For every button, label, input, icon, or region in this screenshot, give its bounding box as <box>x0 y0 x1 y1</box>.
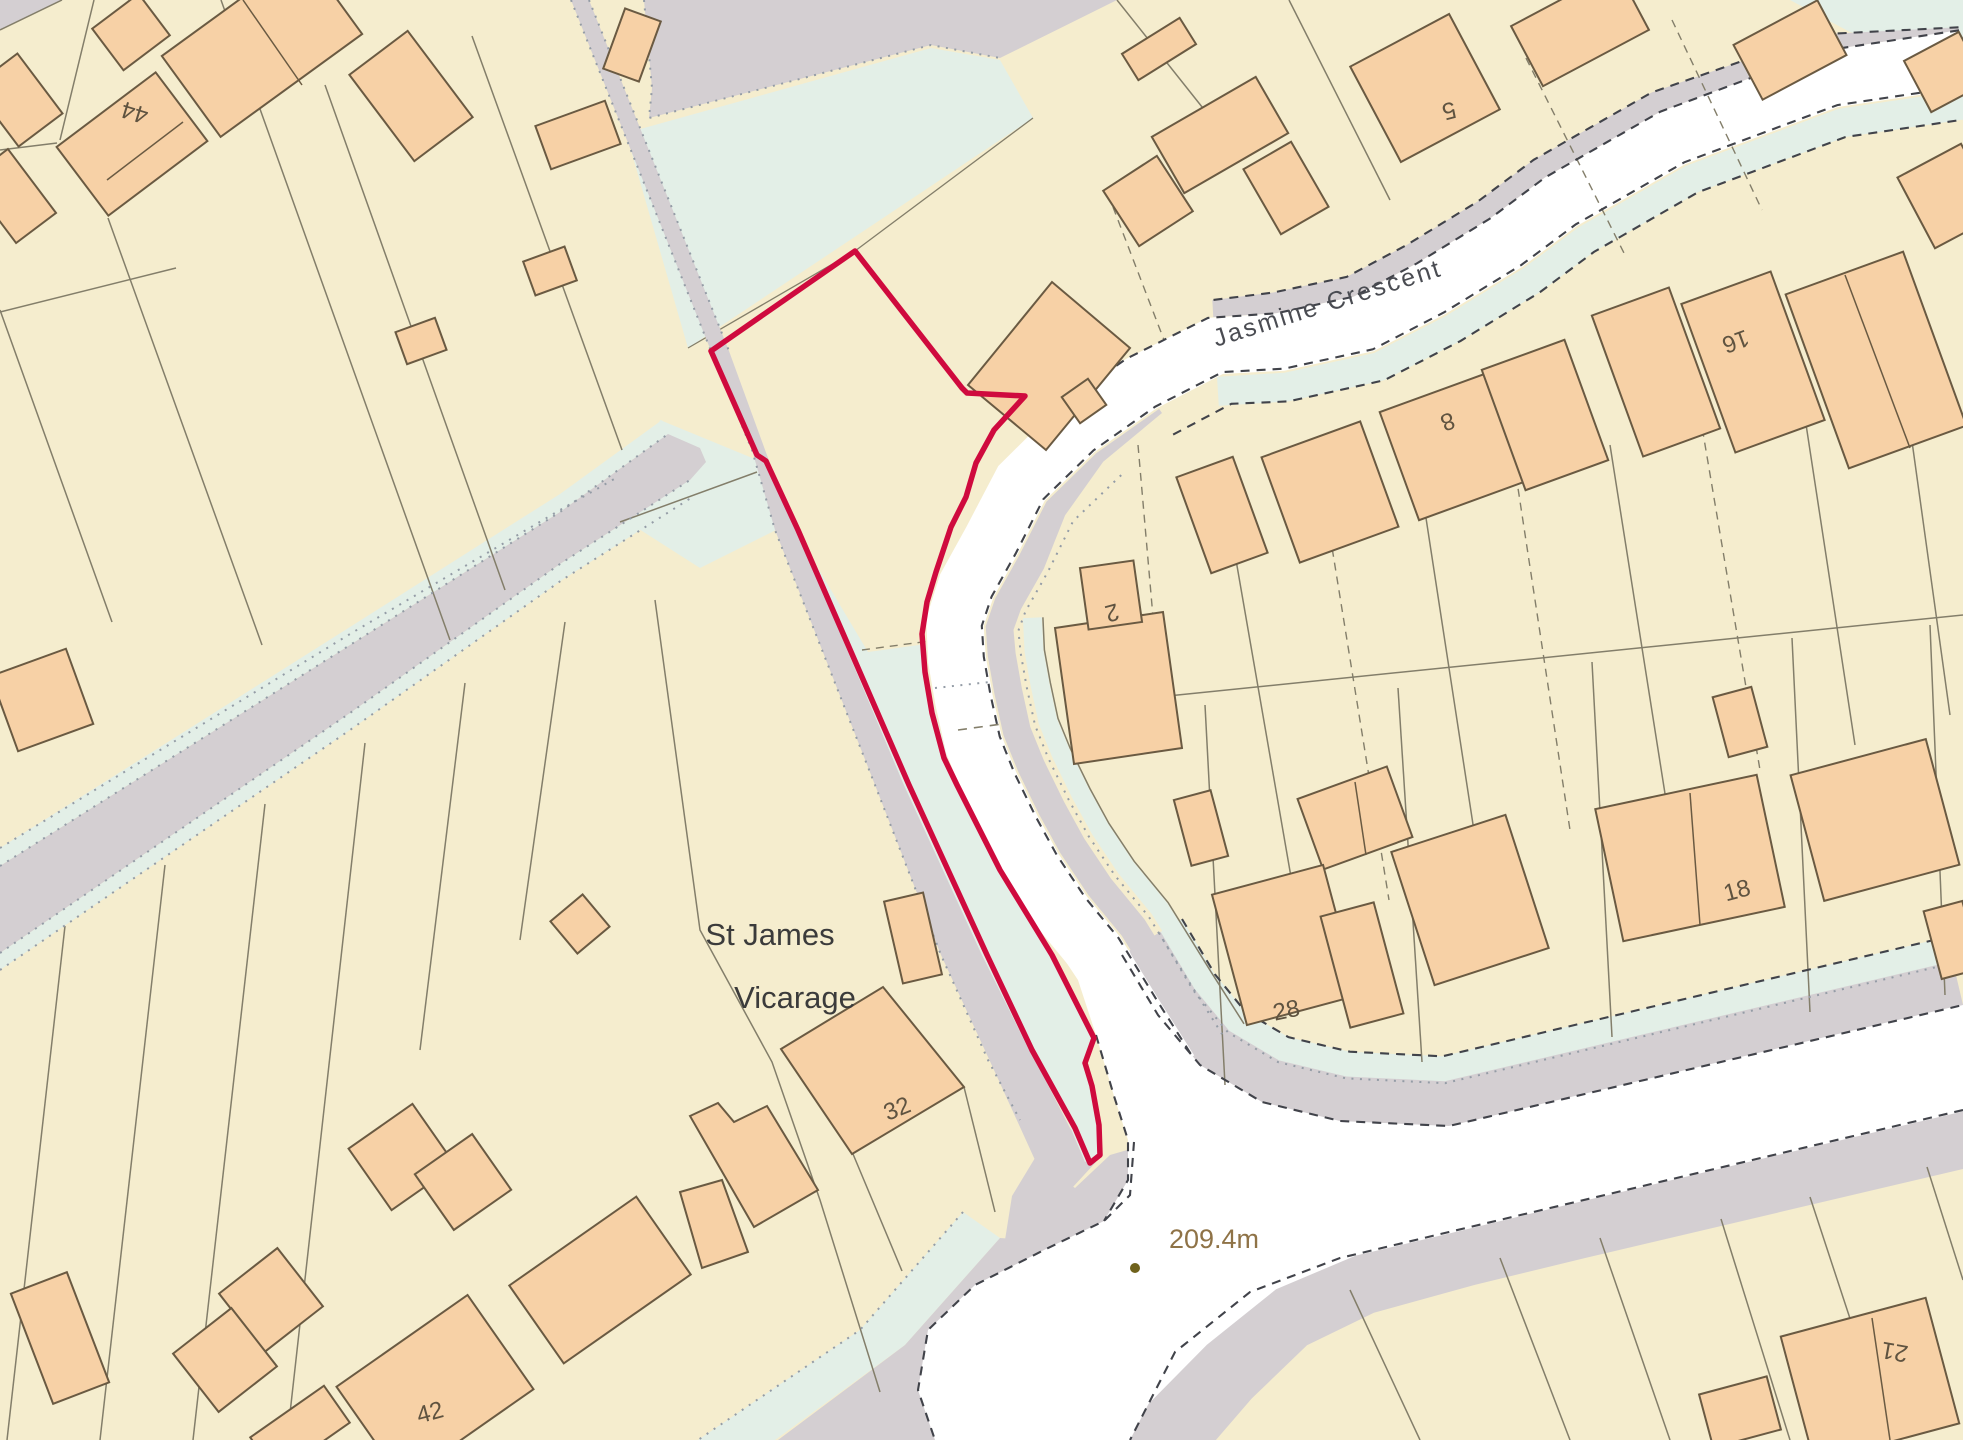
svg-text:209.4m: 209.4m <box>1169 1224 1259 1254</box>
svg-text:28: 28 <box>1271 995 1303 1027</box>
svg-text:St James: St James <box>705 917 834 952</box>
svg-text:Vicarage: Vicarage <box>734 980 856 1015</box>
svg-text:21: 21 <box>1879 1336 1910 1367</box>
